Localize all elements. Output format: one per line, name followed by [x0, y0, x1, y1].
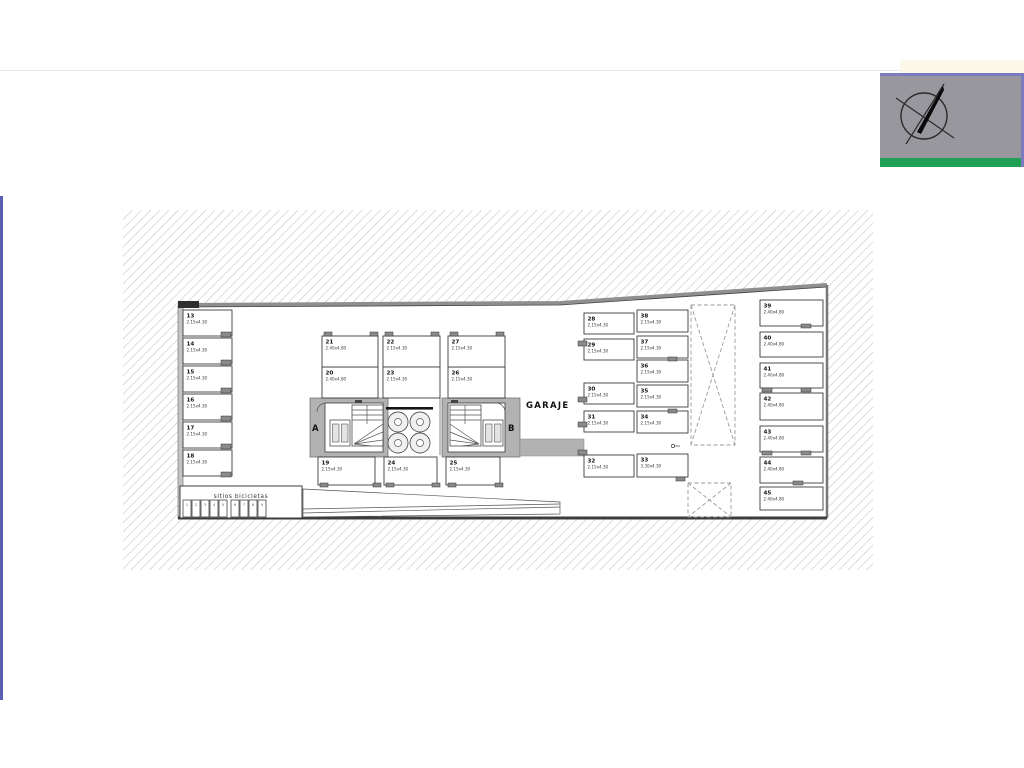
- bike-slot-1: 1: [183, 500, 191, 517]
- logo-cream-strip: [900, 60, 1024, 73]
- parking-space-20: 202.40x4.80: [322, 367, 378, 398]
- space-dimensions: 2.15x4.30: [387, 346, 408, 351]
- space-dimensions: 2.40x4.80: [326, 346, 347, 351]
- column-stub: [578, 422, 587, 427]
- parking-space-21: 212.40x4.80: [322, 336, 378, 367]
- parking-space-30: 302.15x4.30: [584, 383, 634, 404]
- column-stub: [495, 483, 503, 487]
- bike-slot-number: 2: [195, 503, 197, 507]
- bike-slot-4: 4: [210, 500, 218, 517]
- column-stub: [221, 472, 231, 477]
- parking-space-45: 452.40x4.80: [760, 487, 823, 510]
- bike-area: sitios bicicletas 123456789: [180, 486, 302, 518]
- parking-space-26: 262.15x4.30: [448, 367, 505, 398]
- floor-plan-svg: A: [123, 210, 873, 570]
- space-dimensions: 2.15x4.30: [588, 323, 609, 328]
- bike-slot-3: 3: [201, 500, 209, 517]
- parking-space-25: 252.15x4.30: [446, 457, 500, 485]
- parking-space-22: 222.15x4.30: [383, 336, 440, 367]
- parking-space-32: 322.15x4.30: [584, 455, 634, 477]
- column-stub: [221, 416, 231, 421]
- space-dimensions: 2.15x4.30: [641, 320, 662, 325]
- parking-space-37: 372.15x4.30: [637, 336, 688, 358]
- parking-space-33: 333.30x4.30: [637, 454, 688, 477]
- top-divider: [0, 70, 1024, 71]
- bike-slot-number: 1: [186, 503, 188, 507]
- space-dimensions: 2.40x4.80: [764, 373, 785, 378]
- column-stub: [221, 360, 231, 365]
- bike-slot-number: 4: [213, 503, 215, 507]
- plan-corner-label: [178, 301, 199, 308]
- space-dimensions: 2.15x4.30: [187, 348, 208, 353]
- bike-area-label: sitios bicicletas: [214, 494, 268, 500]
- page: A: [0, 0, 1024, 768]
- column-stub: [676, 477, 685, 481]
- stair-a-label: A: [312, 424, 319, 434]
- space-dimensions: 2.15x4.30: [322, 467, 343, 472]
- column-stub: [221, 388, 231, 393]
- door-symbol-b: [451, 400, 458, 403]
- parking-space-43: 432.40x4.80: [760, 426, 823, 452]
- column-stub: [320, 483, 328, 487]
- space-dimensions: 2.15x4.30: [641, 421, 662, 426]
- column-stub: [801, 451, 811, 455]
- parking-space-31: 312.15x4.30: [584, 411, 634, 432]
- space-dimensions: 2.15x4.30: [452, 346, 473, 351]
- bike-slot-2: 2: [192, 500, 200, 517]
- column-stub: [793, 481, 803, 485]
- column-stub: [578, 397, 587, 402]
- bike-slot-7: 7: [240, 500, 248, 517]
- parking-space-38: 382.15x4.30: [637, 310, 688, 332]
- stair-b-label: B: [508, 424, 514, 434]
- bike-slot-number: 7: [243, 503, 245, 507]
- column-stub: [221, 444, 231, 449]
- space-dimensions: 2.15x4.30: [187, 432, 208, 437]
- parking-space-41: 412.40x4.80: [760, 363, 823, 388]
- space-dimensions: 2.40x4.80: [764, 403, 785, 408]
- column-stub: [801, 388, 811, 392]
- space-dimensions: 2.15x4.30: [388, 467, 409, 472]
- compass-icon: [880, 76, 1024, 158]
- column-stub: [324, 332, 332, 336]
- bike-slot-number: 8: [252, 503, 254, 507]
- stair-core-b: B: [442, 398, 520, 457]
- space-dimensions: 2.15x4.30: [641, 395, 662, 400]
- bike-slot-number: 3: [204, 503, 206, 507]
- parking-space-44: 442.40x4.80: [760, 457, 823, 483]
- column-stub: [221, 332, 231, 337]
- column-stub: [373, 483, 381, 487]
- space-dimensions: 2.40x4.80: [764, 497, 785, 502]
- stairs-a: [352, 405, 383, 446]
- space-dimensions: 2.15x4.30: [588, 421, 609, 426]
- column-stub: [762, 451, 772, 455]
- space-dimensions: 2.40x4.80: [764, 436, 785, 441]
- column-stub: [432, 483, 440, 487]
- space-dimensions: 2.15x4.30: [588, 349, 609, 354]
- space-dimensions: 2.40x4.80: [764, 310, 785, 315]
- space-dimensions: 2.15x4.30: [450, 467, 471, 472]
- column-stub: [386, 483, 394, 487]
- logo-gray-panel: [880, 73, 1024, 158]
- space-dimensions: 2.15x4.30: [588, 465, 609, 470]
- parking-space-35: 352.15x4.30: [637, 385, 688, 407]
- column-stub: [448, 483, 456, 487]
- bike-slot-5: 5: [219, 500, 227, 517]
- left-accent-line: [0, 196, 3, 700]
- bike-slot-number: 9: [261, 503, 263, 507]
- space-dimensions: 2.15x4.30: [641, 370, 662, 375]
- parking-space-42: 422.40x4.80: [760, 393, 823, 420]
- column-stub: [385, 332, 393, 336]
- space-dimensions: 2.40x4.80: [764, 342, 785, 347]
- space-dimensions: 2.15x4.30: [588, 393, 609, 398]
- bike-slot-number: 6: [234, 503, 236, 507]
- logo-box: [880, 60, 1024, 169]
- space-dimensions: 2.40x4.80: [764, 467, 785, 472]
- parking-space-40: 402.40x4.80: [760, 332, 823, 357]
- bike-slot-9: 9: [258, 500, 266, 517]
- parking-space-27: 272.15x4.30: [448, 336, 505, 367]
- space-dimensions: 2.15x4.30: [641, 346, 662, 351]
- space-dimensions: 2.40x4.80: [326, 377, 347, 382]
- bike-slot-8: 8: [249, 500, 257, 517]
- parking-space-19: 192.15x4.30: [318, 457, 375, 485]
- garage-label: GARAJE: [526, 401, 569, 411]
- space-dimensions: 3.30x4.30: [641, 464, 662, 469]
- column-stub: [801, 324, 811, 328]
- column-stub: [762, 388, 772, 392]
- parking-space-28: 282.15x4.30: [584, 313, 634, 334]
- column-stub: [496, 332, 504, 336]
- column-stub: [578, 341, 587, 346]
- door-symbol-a: [355, 400, 362, 403]
- space-dimensions: 2.15x4.30: [187, 404, 208, 409]
- floor-plan: A: [123, 210, 873, 570]
- corridor: [520, 439, 584, 456]
- parking-space-36: 362.15x4.30: [637, 360, 688, 382]
- column-stub: [578, 450, 587, 455]
- parking-space-39: 392.40x4.80: [760, 300, 823, 326]
- parking-space-24: 242.15x4.30: [384, 457, 437, 485]
- logo-green-stripe: [880, 158, 1024, 167]
- bike-slot-6: 6: [231, 500, 239, 517]
- space-dimensions: 2.15x4.30: [187, 460, 208, 465]
- space-dimensions: 2.15x4.30: [187, 320, 208, 325]
- space-dimensions: 2.15x4.30: [387, 377, 408, 382]
- column-stub: [668, 357, 677, 361]
- stairs-b: [450, 405, 481, 446]
- column-stub: [668, 409, 677, 413]
- space-dimensions: 2.15x4.30: [187, 376, 208, 381]
- parking-space-23: 232.15x4.30: [383, 367, 440, 398]
- bike-slot-number: 5: [222, 503, 224, 507]
- column-stub: [431, 332, 439, 336]
- stair-core-a: A: [310, 398, 388, 457]
- column-stub: [450, 332, 458, 336]
- column-stub: [370, 332, 378, 336]
- space-dimensions: 2.15x4.30: [452, 377, 473, 382]
- parking-space-29: 292.15x4.30: [584, 339, 634, 360]
- parking-space-34: 342.15x4.30: [637, 411, 688, 433]
